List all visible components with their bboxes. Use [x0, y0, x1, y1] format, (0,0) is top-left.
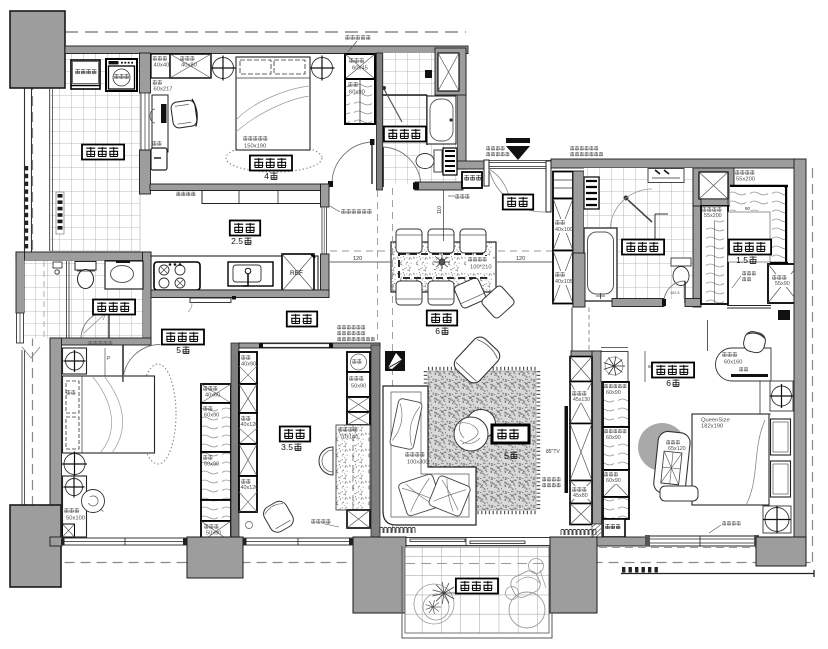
svg-text:60x90: 60x90 — [606, 435, 621, 441]
svg-text:65x120: 65x120 — [668, 446, 686, 452]
svg-text:45x130: 45x130 — [573, 397, 590, 403]
svg-text:150x190: 150x190 — [244, 144, 266, 150]
svg-text:40x40: 40x40 — [154, 63, 170, 69]
svg-text:100*210: 100*210 — [470, 265, 492, 271]
svg-text:182x190: 182x190 — [701, 424, 723, 430]
svg-text:55x90: 55x90 — [775, 281, 790, 287]
svg-text:2.5: 2.5 — [231, 236, 243, 246]
svg-text:3.5: 3.5 — [281, 442, 293, 452]
svg-text:162.8: 162.8 — [670, 291, 680, 295]
svg-text:40x80: 40x80 — [181, 63, 197, 69]
svg-text:55x200: 55x200 — [704, 213, 722, 219]
svg-text:60x90: 60x90 — [204, 461, 219, 467]
svg-text:60x45: 60x45 — [352, 66, 368, 72]
svg-text:60x90: 60x90 — [606, 390, 621, 396]
svg-text:120: 120 — [353, 256, 362, 262]
svg-text:45x80: 45x80 — [573, 493, 588, 499]
svg-text:4: 4 — [264, 171, 269, 181]
svg-text:50x90: 50x90 — [206, 530, 221, 536]
svg-text:6: 6 — [435, 326, 440, 336]
svg-text:40x100: 40x100 — [555, 227, 573, 233]
svg-text:110: 110 — [437, 206, 443, 214]
svg-text:120: 120 — [516, 256, 525, 262]
svg-text:1.5: 1.5 — [736, 255, 748, 265]
svg-text:60x217: 60x217 — [154, 87, 173, 93]
svg-text:60x160: 60x160 — [724, 359, 742, 365]
svg-text:40x120: 40x120 — [241, 485, 259, 491]
svg-text:6: 6 — [666, 378, 671, 388]
svg-text:40x120: 40x120 — [241, 422, 259, 428]
svg-text:60x90: 60x90 — [606, 478, 621, 484]
svg-text:85"TV: 85"TV — [546, 449, 560, 455]
svg-text:40x90: 40x90 — [241, 361, 256, 367]
svg-text:40x105: 40x105 — [555, 279, 573, 285]
svg-text:90: 90 — [745, 206, 751, 211]
svg-text:50x100: 50x100 — [66, 516, 85, 522]
svg-text:QueenSize: QueenSize — [701, 418, 730, 424]
svg-text:60x90: 60x90 — [349, 90, 365, 96]
svg-text:100x300: 100x300 — [407, 459, 428, 465]
svg-text:5: 5 — [504, 451, 509, 461]
svg-text:REF: REF — [290, 270, 303, 277]
svg-text:50x90: 50x90 — [351, 383, 366, 389]
svg-text:60x90: 60x90 — [204, 412, 219, 418]
svg-text:55x200: 55x200 — [736, 177, 755, 183]
svg-text:40x60: 40x60 — [205, 392, 220, 398]
svg-text:5: 5 — [176, 345, 181, 355]
svg-text:70x140: 70x140 — [340, 434, 358, 440]
